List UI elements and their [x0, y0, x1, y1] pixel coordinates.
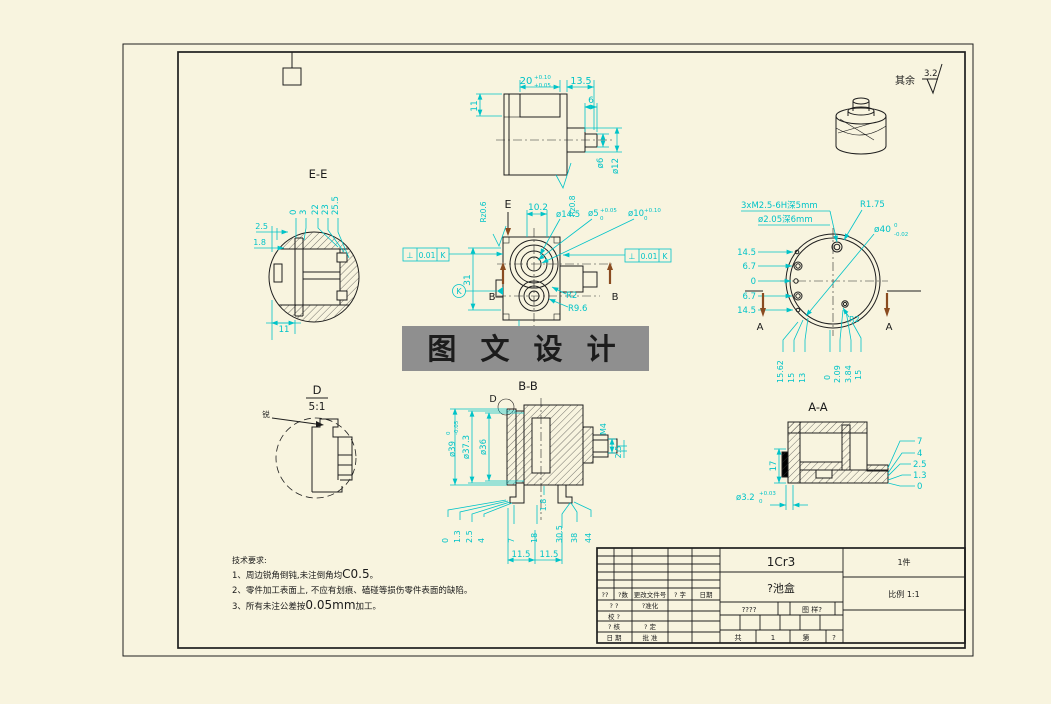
- dim-dia39: ø39: [448, 441, 458, 457]
- dim-dia40: ø40: [874, 225, 891, 235]
- top-view: 20 +0.10 +0.05 13.5 11 6 ø6 ø12 Rz0.8: [470, 75, 622, 217]
- dia39-upper-tol: 0: [446, 431, 452, 435]
- view-e-label: E: [505, 198, 512, 211]
- part-isometric-icon: [836, 98, 886, 154]
- top-view-body: [504, 94, 567, 175]
- rear-bot-15a: 15: [787, 373, 796, 383]
- dim-31: 31: [463, 274, 473, 285]
- bb-bot-44: 44: [584, 533, 593, 543]
- tech-req-line1a: 1、周边锐角倒钝,未注倒角均: [232, 570, 342, 581]
- tol-left-symbol: ⊥: [407, 251, 414, 260]
- front-view: B B ⊥ 0.01 K ⊥ 0.01 K K 31 E: [403, 198, 671, 332]
- tb-header-c3: 更改文件号: [634, 590, 667, 599]
- section-a-label-right: A: [886, 322, 893, 333]
- bb-bot-1-3: 1.3: [453, 530, 462, 543]
- tech-req-line1: 1、周边锐角倒钝,未注倒角均C0.5。: [232, 567, 378, 581]
- ee-dim-1-8: 1.8: [253, 238, 266, 247]
- tech-req-line2: 2、零件加工表面上, 不应有划痕、磕碰等损伤零件表面的缺陷。: [232, 585, 472, 596]
- section-b-arrow-left: [500, 262, 506, 270]
- tech-req-line3: 3、所有未注公差按0.05mm加工。: [232, 598, 381, 612]
- tb-row4-mid: 批 准: [642, 633, 658, 642]
- top-view-stub: [585, 134, 597, 147]
- dim-17: 17: [769, 461, 779, 472]
- tb-weight-cell: 图 样?: [802, 605, 822, 614]
- front-roughness: Rz0.6: [479, 201, 488, 222]
- tb-part-name: ?池盒: [767, 581, 795, 595]
- tb-header-c5: 日期: [700, 591, 714, 599]
- rear-left-0: 0: [751, 277, 756, 287]
- tb-header-c4: ? 字: [674, 590, 687, 599]
- tb-scale: 比例 1:1: [888, 589, 919, 599]
- dim-dia12: ø12: [611, 158, 621, 174]
- dia40-upper-tol: 0: [894, 223, 898, 229]
- dim-20-upper-tol: +0.10: [534, 75, 551, 81]
- dim-dia5: ø5: [588, 209, 599, 219]
- bb-flange-plate: [507, 409, 516, 485]
- dia3-2-upper-tol: +0.03: [759, 491, 776, 497]
- bb-bot-18: 18: [530, 533, 539, 543]
- dim-dia14-5: ø14.5: [556, 210, 580, 220]
- tol-left-value: 0.01: [419, 251, 436, 260]
- technical-requirements: 技术要求: 1、周边锐角倒钝,未注倒角均C0.5。 2、零件加工表面上, 不应有…: [232, 555, 472, 612]
- tb-mark-cell: ????: [742, 606, 757, 614]
- rear-left-14-5b: 14.5: [737, 306, 756, 316]
- aa-dim-2-5: 2.5: [913, 460, 927, 470]
- tech-req-title: 技术要求:: [232, 555, 267, 565]
- dim-11-5-b: 11.5: [540, 550, 559, 560]
- rear-bot-3-84: 3.84: [844, 365, 853, 383]
- tb-row1-left: ? ?: [610, 602, 619, 610]
- dim-20: 20: [520, 76, 533, 87]
- dim-dia6: ø6: [596, 158, 606, 169]
- dim-10-2: 10.2: [528, 203, 548, 213]
- dim-11-5-a: 11.5: [512, 550, 531, 560]
- dim-r1-75: R1.75: [860, 200, 885, 210]
- rear-bot-0: 0: [823, 375, 832, 380]
- aa-dim-4: 4: [917, 449, 922, 459]
- dim-6: 6: [588, 96, 594, 106]
- aa-dim-7: 7: [917, 437, 922, 447]
- tb-row3-mid: ? 定: [644, 622, 657, 631]
- ee-title: E-E: [309, 167, 328, 181]
- dia40-lower-tol: -0.02: [894, 232, 908, 238]
- rear-left-14-5a: 14.5: [737, 248, 756, 258]
- d-note-char: 锐: [262, 409, 270, 419]
- ee-dim-3: 3: [299, 210, 309, 215]
- dim-1-8: 1.8: [539, 499, 548, 512]
- ee-dim-22: 22: [311, 204, 321, 215]
- section-a-arrow-right: [884, 308, 890, 317]
- cad-drawing-sheet: 其余 3.2 20 +0.10 +0.05 13.5: [0, 0, 1051, 704]
- finish-note-value: 3.2: [924, 69, 938, 79]
- dim-r2: R2: [566, 291, 577, 301]
- tb-row1-mid: ?准化: [642, 601, 659, 610]
- d-detail-boundary: [276, 418, 356, 498]
- tol-right-datum: K: [663, 252, 669, 261]
- rear-bot-2-09: 2.09: [833, 365, 842, 383]
- rear-view: 14.5 6.7 0 6.7 14.5 3xM2.5-6H深5mm ø2.05深…: [737, 200, 921, 383]
- tol-right-value: 0.01: [641, 252, 658, 261]
- ee-dim-25-5: 25.5: [331, 196, 341, 215]
- bb-d-label: D: [489, 394, 496, 405]
- d-view-title: D: [313, 383, 322, 397]
- dim-dia10: ø10: [628, 209, 644, 219]
- tolerance-frame-left: ⊥ 0.01 K: [403, 248, 503, 261]
- tb-row3-left: ? 核: [608, 622, 621, 631]
- tol-left-datum: K: [441, 251, 447, 260]
- dim-dia37-3: ø37.3: [462, 435, 472, 459]
- aa-shelf: [800, 462, 842, 470]
- d-view-scale: 5:1: [309, 401, 326, 413]
- aa-left-wall: [788, 422, 800, 483]
- tech-req-line3b: 0.05mm: [305, 598, 355, 612]
- front-shaft-stub: [583, 272, 597, 287]
- hole-note: ø2.05深6mm: [758, 215, 813, 225]
- zone-marker-box: [283, 68, 301, 85]
- bb-bot-2-5: 2.5: [465, 530, 474, 543]
- section-b-label-left: B: [489, 292, 496, 303]
- d-detail-view: D 5:1 锐: [262, 383, 356, 498]
- dia5-upper-tol: +0.05: [600, 208, 617, 214]
- bb-section-view: B-B D ø39 0 -0.05 ø37.3 ø36 M4 2.5: [441, 379, 627, 564]
- section-b-arrow-right: [607, 262, 613, 270]
- ee-dim-2-5: 2.5: [255, 222, 268, 231]
- dim-m4: M4: [599, 423, 608, 435]
- tb-row4-left: 日 期: [606, 634, 622, 642]
- aa-bottom-plate: [800, 470, 888, 483]
- ee-dim-0: 0: [289, 210, 299, 215]
- tb-sheet-gong: 共: [735, 633, 742, 642]
- tb-sheet-num: ?: [832, 634, 836, 642]
- dim-13-5: 13.5: [570, 76, 591, 87]
- ee-left-slot: [274, 264, 282, 282]
- tb-quantity: 1件: [897, 557, 910, 567]
- tech-req-line1b: C0.5: [342, 567, 369, 581]
- rear-bot-13: 13: [798, 373, 807, 383]
- tech-req-line1c: 。: [370, 571, 379, 581]
- tolerance-frame-right: ⊥ 0.01 K: [563, 249, 671, 262]
- bb-bot-38: 38: [570, 533, 579, 543]
- dim-11: 11: [470, 100, 480, 111]
- tb-sheet-total: 1: [771, 634, 775, 642]
- datum-k-triangle: [497, 287, 503, 295]
- drawing-canvas: 其余 3.2 20 +0.10 +0.05 13.5: [0, 0, 1051, 704]
- tol-right-symbol: ⊥: [629, 252, 636, 261]
- front-shaft-step: [560, 266, 583, 292]
- tech-req-line3a: 3、所有未注公差按: [232, 601, 306, 612]
- watermark-text: 图 文 设 计: [427, 332, 622, 366]
- rear-left-6-7b: 6.7: [742, 292, 756, 302]
- dim-dia36: ø36: [479, 439, 489, 455]
- ee-dim-11: 11: [279, 325, 290, 335]
- finish-note-label: 其余: [895, 74, 915, 87]
- watermark: 图 文 设 计: [402, 326, 649, 371]
- general-finish-note: 其余 3.2: [895, 64, 942, 93]
- ee-dim-23: 23: [321, 204, 331, 215]
- dim-r9-6: R9.6: [568, 304, 587, 314]
- title-block: ?? ?数 更改文件号 ? 字 日期 ? ? ?准化 校 ? ? 核 ? 定 日…: [597, 548, 965, 643]
- aa-title: A-A: [808, 400, 828, 414]
- rear-left-6-7a: 6.7: [742, 262, 756, 272]
- view-e-arrow: [505, 228, 511, 236]
- dim-dia3-2: ø3.2: [736, 493, 755, 503]
- section-b-label-right: B: [612, 292, 619, 303]
- aa-dim-0: 0: [917, 482, 922, 492]
- bb-title: B-B: [518, 379, 538, 393]
- thread-note: 3xM2.5-6H深5mm: [741, 201, 818, 211]
- bb-bot-0: 0: [441, 538, 450, 543]
- bb-bot-30-5: 30.5: [555, 525, 564, 543]
- dim-2-5-right: 2.5: [614, 446, 623, 459]
- tech-req-line3c: 加工。: [356, 601, 382, 612]
- tb-sheet-di: 第: [803, 633, 810, 642]
- datum-k-label: K: [456, 287, 462, 296]
- tb-header-c1: ??: [602, 591, 609, 599]
- dia5-lower-tol: 0: [600, 216, 604, 222]
- section-a-label-left: A: [757, 322, 764, 333]
- tb-material: 1Cr3: [767, 555, 796, 569]
- ee-section-view: E-E 0 3 22 23 25.5 2.5 1.8 11: [253, 167, 360, 340]
- aa-section-view: A-A 7 4 2.5 1.3 0 17 ø3.2 +0.03 0: [736, 400, 927, 510]
- tb-row2-left: 校 ?: [608, 612, 620, 621]
- dia39-lower-tol: -0.05: [454, 420, 460, 435]
- dia10-lower-tol: 0: [644, 216, 648, 222]
- section-a-arrow-left: [760, 308, 766, 317]
- aa-rib: [842, 425, 850, 470]
- rear-bot-15-62: 15.62: [776, 360, 785, 383]
- rear-bot-15b: 15: [854, 370, 863, 380]
- bb-bot-4: 4: [477, 538, 486, 543]
- rear-dim-r2: R2: [849, 315, 860, 324]
- dia10-upper-tol: +0.10: [644, 208, 661, 214]
- aa-dim-1-3: 1.3: [913, 471, 927, 481]
- dia3-2-lower-tol: 0: [759, 499, 763, 505]
- bb-shaft: [593, 435, 608, 457]
- dim-20-lower-tol: +0.05: [534, 83, 551, 89]
- tb-header-c2: ?数: [618, 590, 628, 599]
